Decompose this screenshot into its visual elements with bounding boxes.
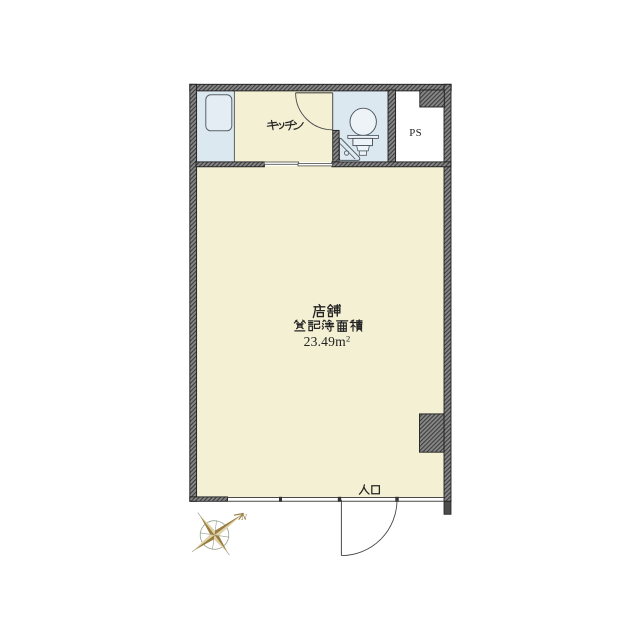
svg-text:PS: PS — [409, 127, 422, 139]
svg-text:23.49m2: 23.49m2 — [304, 334, 351, 350]
